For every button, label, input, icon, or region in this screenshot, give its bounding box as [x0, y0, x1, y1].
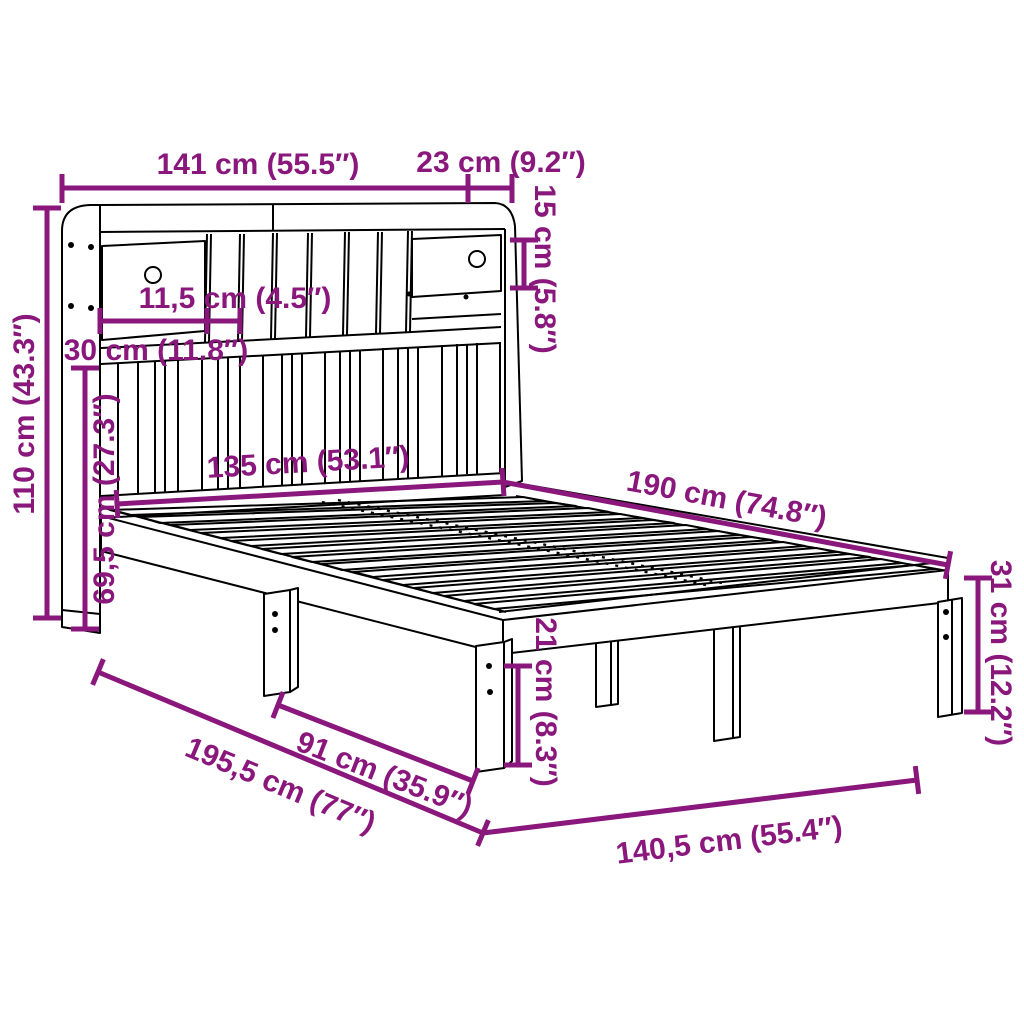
diagram-canvas: 141 cm (55.5″) 23 cm (9.2″) 15 cm (5.8″)… — [0, 0, 1024, 1024]
dim-label-compartment-width: 11,5 cm (4.5″) — [139, 282, 332, 315]
dim-headboard-height: 110 cm (43.3″) — [8, 208, 61, 618]
dim-label-headboard-depth: 23 cm (9.2″) — [416, 146, 585, 179]
headboard-right-panel — [505, 226, 522, 487]
dim-label-total-width: 140,5 cm (55.4″) — [614, 810, 844, 871]
screw-hole — [88, 305, 94, 311]
dim-foot-leg-height: 31 cm (12.2″) — [964, 560, 1017, 746]
screw-hole — [943, 609, 949, 615]
screw-hole — [407, 292, 412, 297]
right-compartment-floor — [412, 314, 501, 319]
dim-headboard-width-and-depth: 141 cm (55.5″) 23 cm (9.2″) — [62, 146, 586, 203]
dim-label-under-bed-clearance: 21 cm (8.3″) — [529, 617, 562, 786]
dim-label-foot-leg-height: 31 cm (12.2″) — [984, 560, 1017, 746]
dim-label-top-shelf-height: 15 cm (5.8″) — [528, 184, 561, 353]
screw-hole — [88, 244, 94, 250]
screw-hole — [486, 663, 492, 669]
far-middle-leg — [714, 625, 740, 741]
right-panel-edges — [505, 226, 522, 487]
front-foot-leg — [476, 639, 512, 772]
center-support-leg — [596, 640, 618, 707]
far-foot-leg — [938, 598, 962, 717]
dim-label-headboard-width: 141 cm (55.5″) — [157, 148, 360, 181]
screw-hole — [68, 303, 74, 309]
dim-label-drawer-section-width: 30 cm (11.8″) — [64, 334, 248, 367]
bed-dimension-diagram: 141 cm (55.5″) 23 cm (9.2″) 15 cm (5.8″)… — [0, 0, 1024, 1024]
screw-hole — [272, 611, 278, 617]
screw-hole — [272, 627, 278, 633]
front-middle-leg — [264, 588, 298, 696]
screw-hole — [943, 634, 949, 640]
right-drawer — [412, 235, 501, 297]
screw-hole — [487, 689, 493, 695]
dim-label-bed-inner-width: 135 cm (53.1″) — [206, 440, 410, 485]
screw-hole — [68, 242, 74, 248]
headboard-top-rail — [100, 203, 515, 232]
top-rail-outer-edge — [100, 203, 515, 226]
dim-label-headboard-height: 110 cm (43.3″) — [8, 313, 41, 514]
top-rail-bottom-edge — [100, 229, 505, 232]
screw-hole — [464, 295, 469, 300]
